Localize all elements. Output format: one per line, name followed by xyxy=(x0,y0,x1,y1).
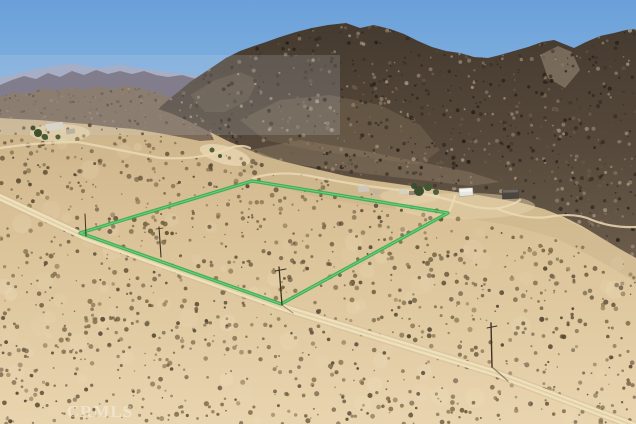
watermark: CRMLS xyxy=(67,402,133,421)
horizon-haze xyxy=(0,55,340,135)
white-building xyxy=(459,188,473,197)
aerial-photo-scene: CRMLS xyxy=(0,0,636,424)
dark-building xyxy=(502,190,519,200)
aerial-photo: CRMLS xyxy=(0,0,636,424)
